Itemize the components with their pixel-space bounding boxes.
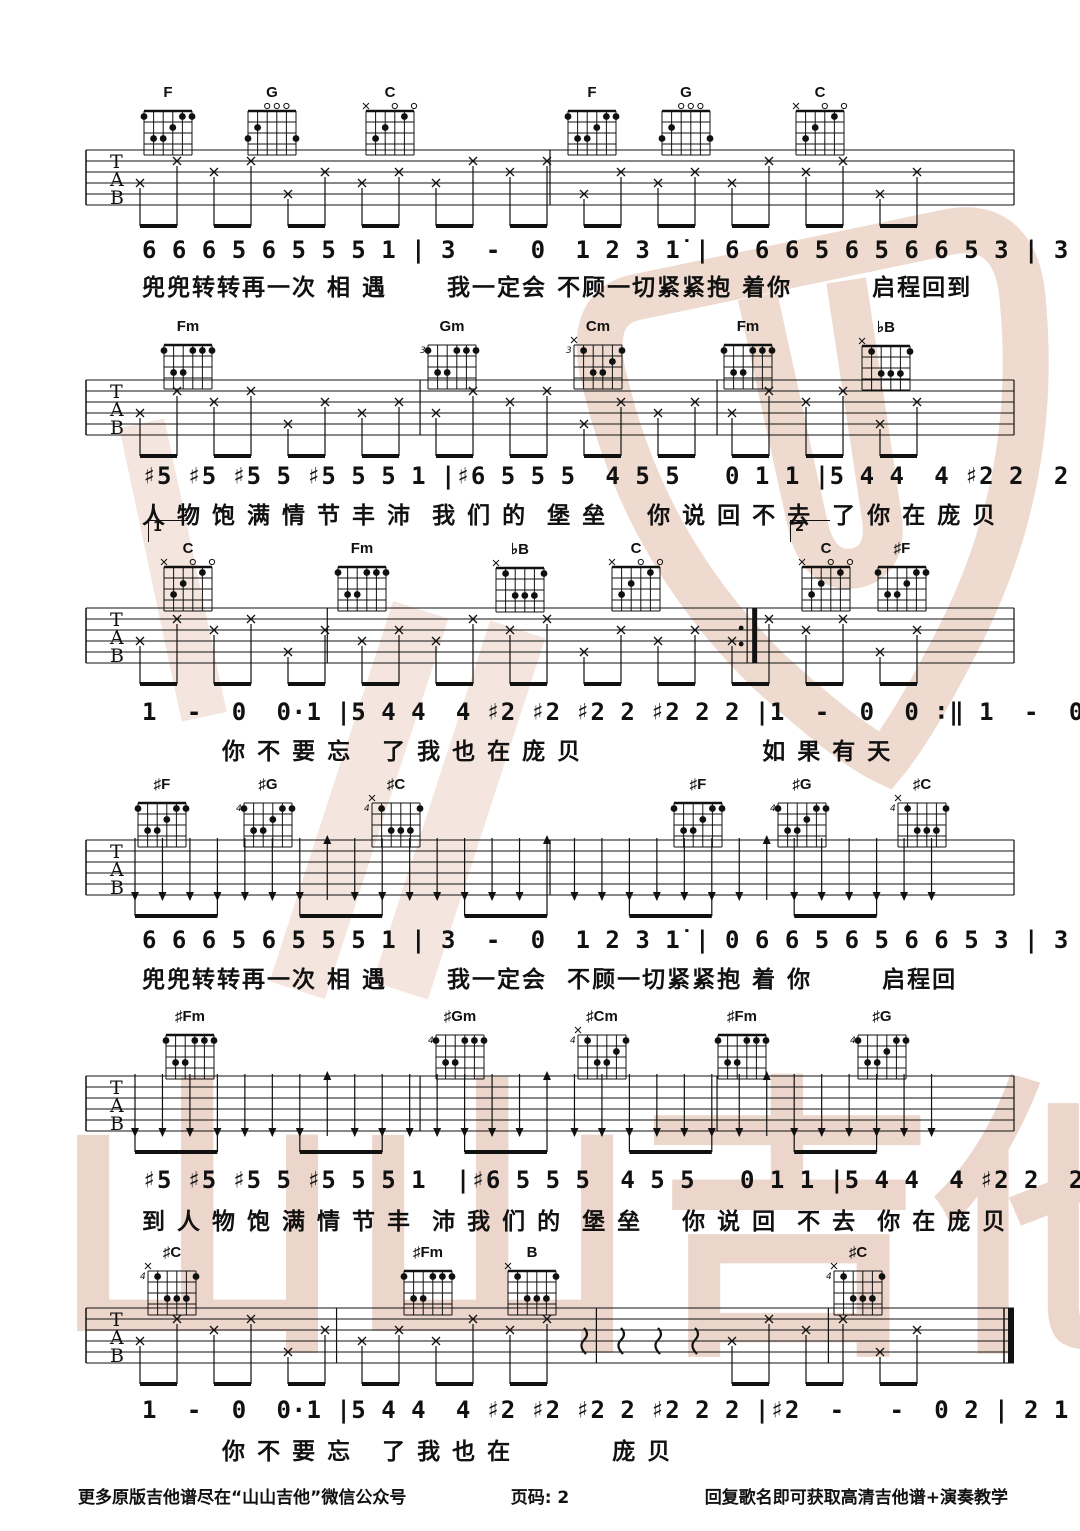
tab-staff: TAB: [80, 140, 1020, 240]
chord-name: ♯C: [137, 1244, 207, 1261]
volta-bracket-2: 2: [790, 520, 830, 542]
chord-name: F: [557, 84, 627, 101]
svg-text:4: 4: [364, 804, 370, 814]
chord-name: Cm: [563, 318, 633, 335]
tab-staff-row: TAB: [80, 140, 1020, 240]
chord-name: C: [601, 540, 671, 557]
svg-text:4: 4: [570, 1036, 576, 1046]
volta-bracket-1: 1: [148, 520, 188, 542]
melody-line: 6 6 6 5 6 5 5 5 1 | 3 - 0 1 2 3 1̇ | 0 6…: [142, 926, 1042, 954]
chord-name: Fm: [713, 318, 783, 335]
melody-line: 1 - 0 0·1 |5 4 4 4 ♯2 ♯2 ♯2 2 ♯2 2 2 |1 …: [142, 698, 1042, 726]
lyrics-line: 你 不 要 忘 了 我 也 在 庞 贝: [142, 1432, 1042, 1466]
chord-name: ♯F: [663, 776, 733, 793]
melody-line: ♯5 ♯5 ♯5 5 ♯5 5 5 1 |♯6 5 5 5 4 5 5 0 1 …: [142, 1166, 1042, 1194]
chord-name: ♯G: [233, 776, 303, 793]
svg-text:3: 3: [566, 346, 572, 356]
chord-name: G: [237, 84, 307, 101]
chord-name: ♯Fm: [155, 1008, 225, 1025]
chord-name: F: [133, 84, 203, 101]
melody-line: 6 6 6 5 6 5 5 5 1 | 3 - 0 1 2 3 1̇ | 6 6…: [142, 236, 1042, 264]
svg-text:B: B: [110, 1113, 124, 1135]
chord-name: ♭B: [485, 540, 555, 558]
tab-staff-row: TAB: [80, 1298, 1020, 1398]
tab-staff: TAB: [80, 1066, 1020, 1166]
footer-right-text: 回复歌名即可获取高清吉他谱+演奏教学: [705, 1483, 1008, 1508]
svg-text:4: 4: [826, 1272, 832, 1282]
lyrics-line: 人 物 饱 满 情 节 丰 沛 我 们 的 堡 垒 你 说 回 不 去 了 你 …: [142, 496, 1042, 530]
svg-text:B: B: [110, 417, 124, 439]
lyrics-line: 兜兜转转再一次 相 遇 我一定会 不顾一切紧紧抱 着 你 启程回: [142, 960, 1042, 994]
tab-staff: TAB: [80, 598, 1020, 698]
chord-name: ♯G: [847, 1008, 917, 1025]
chord-name: ♯F: [127, 776, 197, 793]
chord-name: C: [355, 84, 425, 101]
tab-staff-row: TAB: [80, 370, 1020, 470]
chord-name: Fm: [153, 318, 223, 335]
chord-name: ♯C: [823, 1244, 893, 1261]
lyrics-line: 到 人 物 饱 满 情 节 丰 沛 我 们 的 堡 垒 你 说 回 不 去 你 …: [142, 1202, 1042, 1236]
lyrics-line: 兜兜转转再一次 相 遇 我一定会 不顾一切紧紧抱 着你 启程回到: [142, 268, 1042, 302]
svg-text:B: B: [110, 1345, 124, 1367]
svg-text:B: B: [110, 645, 124, 667]
chord-name: ♯G: [767, 776, 837, 793]
chord-name: Gm: [417, 318, 487, 335]
score-page: FGCFGCTAB6 6 6 5 6 5 5 5 1 | 3 - 0 1 2 3…: [0, 0, 1080, 1527]
chord-name: ♯Fm: [707, 1008, 777, 1025]
tab-staff: TAB: [80, 370, 1020, 470]
chord-name: ♯C: [361, 776, 431, 793]
chord-name: ♯Cm: [567, 1008, 637, 1025]
tab-staff-row: TAB: [80, 830, 1020, 930]
svg-text:4: 4: [890, 804, 896, 814]
chord-name: C: [791, 540, 861, 557]
chord-name: B: [497, 1244, 567, 1261]
tab-staff: TAB: [80, 1298, 1020, 1398]
chord-name: Fm: [327, 540, 397, 557]
lyrics-line: 你 不 要 忘 了 我 也 在 庞 贝 如 果 有 天: [142, 732, 1042, 766]
melody-line: 1 - 0 0·1 |5 4 4 4 ♯2 ♯2 ♯2 2 ♯2 2 2 |♯2…: [142, 1396, 1042, 1424]
chord-name: C: [153, 540, 223, 557]
tab-staff: TAB: [80, 830, 1020, 930]
chord-name: G: [651, 84, 721, 101]
svg-text:4: 4: [140, 1272, 146, 1282]
svg-text:B: B: [110, 187, 124, 209]
svg-text:B: B: [110, 877, 124, 899]
chord-name: ♯F: [867, 540, 937, 557]
tab-staff-row: TAB: [80, 598, 1020, 698]
chord-name: ♯Fm: [393, 1244, 463, 1261]
melody-line: ♯5 ♯5 ♯5 5 ♯5 5 5 1 |♯6 5 5 5 4 5 5 0 1 …: [142, 462, 1042, 490]
tab-staff-row: TAB: [80, 1066, 1020, 1166]
chord-name: ♯Gm: [425, 1008, 495, 1025]
chord-name: C: [785, 84, 855, 101]
chord-name: ♭B: [851, 318, 921, 336]
chord-name: ♯C: [887, 776, 957, 793]
